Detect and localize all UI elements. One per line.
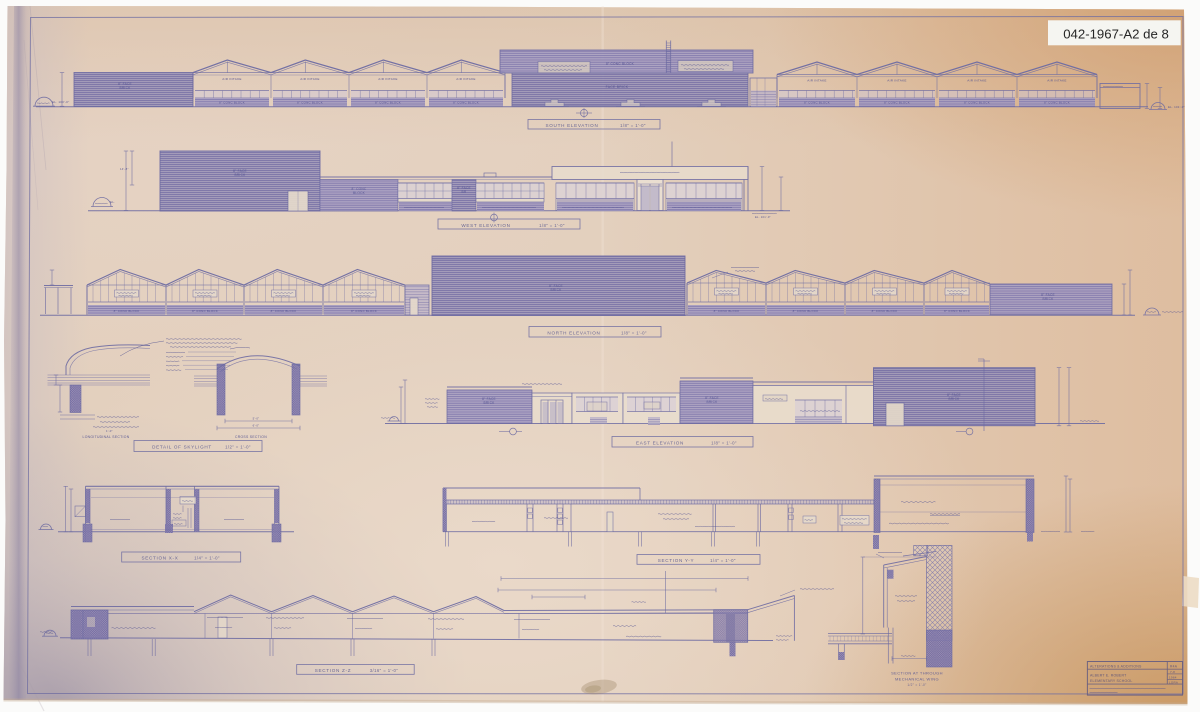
- svg-text:AIR INTAKE: AIR INTAKE: [967, 79, 986, 83]
- svg-text:SECTION AT THROUGH: SECTION AT THROUGH: [891, 671, 943, 676]
- svg-text:1/8" = 1'-0": 1/8" = 1'-0": [620, 123, 646, 128]
- svg-text:8" CONC BLOCK: 8" CONC BLOCK: [793, 309, 819, 313]
- svg-text:EL. 101'-0": EL. 101'-0": [755, 215, 771, 219]
- svg-text:AIR INTAKE: AIR INTAKE: [807, 79, 826, 83]
- svg-text:ALTERATIONS & ADDITIONS: ALTERATIONS & ADDITIONS: [1090, 664, 1142, 668]
- svg-text:8" CONC BLOCK: 8" CONC BLOCK: [872, 309, 898, 313]
- svg-text:1/4" = 1'-0": 1/4" = 1'-0": [710, 558, 736, 563]
- svg-text:SOUTH ELEVATION: SOUTH ELEVATION: [546, 123, 599, 128]
- svg-text:BRICK: BRICK: [120, 86, 132, 90]
- svg-text:WEST ELEVATION: WEST ELEVATION: [461, 223, 510, 228]
- svg-text:R4A: R4A: [1170, 664, 1178, 668]
- svg-text:8" CONC BLOCK: 8" CONC BLOCK: [453, 101, 479, 105]
- svg-text:BRICK: BRICK: [235, 173, 247, 177]
- svg-text:14'-8": 14'-8": [120, 167, 129, 171]
- svg-text:7-8: 7-8: [1170, 670, 1175, 674]
- svg-text:1964: 1964: [1169, 676, 1177, 680]
- svg-text:BRICK: BRICK: [949, 397, 961, 401]
- svg-text:FACE BRICK: FACE BRICK: [606, 85, 629, 89]
- svg-text:BRICK: BRICK: [551, 288, 563, 292]
- svg-text:8" CONC BLOCK: 8" CONC BLOCK: [219, 101, 245, 105]
- svg-text:BRICK: BRICK: [1043, 297, 1055, 301]
- svg-text:8" CONC BLOCK: 8" CONC BLOCK: [192, 309, 218, 313]
- svg-text:SECTION Y-Y: SECTION Y-Y: [658, 558, 695, 563]
- svg-text:1/8" = 1'-0": 1/8" = 1'-0": [539, 223, 565, 228]
- svg-text:SECTION Z-Z: SECTION Z-Z: [315, 668, 352, 673]
- svg-text:8" CONC BLOCK: 8" CONC BLOCK: [606, 62, 635, 66]
- svg-text:AIR INTAKE: AIR INTAKE: [378, 77, 397, 81]
- svg-text:1/8" = 1'-0": 1/8" = 1'-0": [711, 440, 737, 445]
- svg-text:ELEMENTARY SCHOOL: ELEMENTARY SCHOOL: [1090, 679, 1133, 683]
- svg-text:5'-0": 5'-0": [253, 417, 260, 421]
- svg-text:1/2" = 1'-0": 1/2" = 1'-0": [225, 445, 251, 450]
- svg-text:ALBERT E. ROBERT: ALBERT E. ROBERT: [1090, 674, 1127, 678]
- svg-text:1'-0": 1'-0": [106, 429, 113, 433]
- svg-text:8" CONC BLOCK: 8" CONC BLOCK: [297, 101, 323, 105]
- svg-text:8" CONC BLOCK: 8" CONC BLOCK: [351, 309, 377, 313]
- svg-text:CROSS SECTION: CROSS SECTION: [235, 435, 267, 439]
- svg-text:BRICK: BRICK: [707, 400, 719, 404]
- svg-text:6'-0": 6'-0": [253, 424, 260, 428]
- svg-text:MECHANICAL WING: MECHANICAL WING: [895, 677, 939, 682]
- svg-text:SECTION X-X: SECTION X-X: [141, 556, 178, 561]
- svg-text:1/4" = 1'-0": 1/4" = 1'-0": [194, 556, 220, 561]
- svg-text:8" CONC BLOCK: 8" CONC BLOCK: [714, 309, 740, 313]
- svg-text:BLOCK: BLOCK: [353, 191, 366, 195]
- svg-text:NORTH ELEVATION: NORTH ELEVATION: [547, 330, 600, 335]
- svg-text:EL. 100'-0": EL. 100'-0": [52, 100, 69, 104]
- svg-text:8" CONC BLOCK: 8" CONC BLOCK: [884, 101, 910, 105]
- svg-text:3/16" = 1'-0": 3/16" = 1'-0": [370, 668, 399, 673]
- svg-text:AIR INTAKE: AIR INTAKE: [887, 79, 906, 83]
- svg-text:EL. 101'-0": EL. 101'-0": [1168, 105, 1185, 109]
- svg-text:8" CONC BLOCK: 8" CONC BLOCK: [114, 309, 140, 313]
- svg-text:1/2" = 1'-0": 1/2" = 1'-0": [907, 683, 926, 687]
- svg-text:1/8" = 1'-0": 1/8" = 1'-0": [621, 330, 647, 335]
- svg-text:8" CONC BLOCK: 8" CONC BLOCK: [964, 101, 990, 105]
- svg-text:EL.: EL.: [110, 200, 115, 204]
- svg-text:BR: BR: [462, 190, 467, 194]
- svg-text:DETAIL OF SKYLIGHT: DETAIL OF SKYLIGHT: [152, 445, 212, 450]
- svg-text:AIR INTAKE: AIR INTAKE: [1047, 79, 1066, 83]
- svg-text:8" CONC BLOCK: 8" CONC BLOCK: [375, 101, 401, 105]
- svg-text:LORA: LORA: [1169, 680, 1178, 684]
- svg-text:AIR INTAKE: AIR INTAKE: [300, 77, 319, 81]
- svg-text:042-1967-A2 de 8: 042-1967-A2 de 8: [1063, 27, 1169, 42]
- svg-text:8" CONC BLOCK: 8" CONC BLOCK: [804, 101, 830, 105]
- svg-text:8" CONC BLOCK: 8" CONC BLOCK: [271, 309, 297, 313]
- svg-text:EAST ELEVATION: EAST ELEVATION: [636, 440, 684, 445]
- svg-text:8" CONC BLOCK: 8" CONC BLOCK: [944, 309, 970, 313]
- svg-text:BRICK: BRICK: [484, 401, 496, 405]
- svg-text:8" CONC BLOCK: 8" CONC BLOCK: [1044, 101, 1070, 105]
- svg-text:AIR INTAKE: AIR INTAKE: [222, 77, 241, 81]
- svg-text:AIR INTAKE: AIR INTAKE: [456, 77, 475, 81]
- svg-text:LONGITUDINAL SECTION: LONGITUDINAL SECTION: [83, 435, 130, 439]
